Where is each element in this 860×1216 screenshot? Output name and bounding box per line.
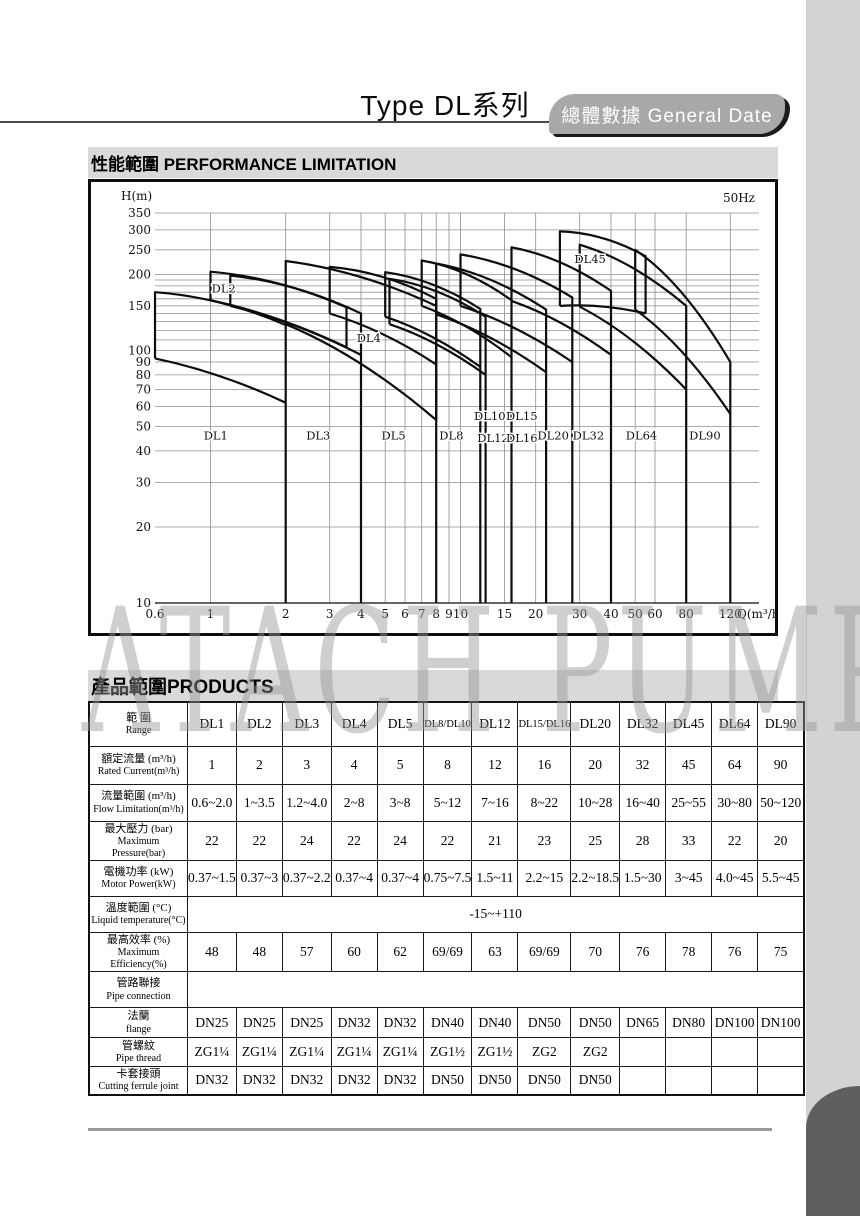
row-label: 卡套接頭Cutting ferrule joint (89, 1067, 188, 1095)
table-cell (712, 1067, 758, 1095)
table-row: 最大壓力 (bar)Maximum Pressure(bar)222224222… (89, 821, 804, 860)
table-cell: 4.0~45 (712, 860, 758, 896)
table-cell: 33 (666, 821, 712, 860)
table-cell: 69/69 (518, 932, 571, 971)
table-cell: 78 (666, 932, 712, 971)
table-cell: ZG1¼ (331, 1038, 377, 1067)
svg-text:4: 4 (357, 607, 365, 621)
table-cell: 10~28 (571, 784, 620, 821)
column-header-DL12: DL12 (472, 702, 518, 746)
column-header-DL64: DL64 (712, 702, 758, 746)
table-cell (666, 1067, 712, 1095)
svg-text:10: 10 (453, 607, 468, 621)
page-corner-decoration (806, 1086, 860, 1216)
table-cell: DN32 (377, 1008, 423, 1038)
table-cell: 16 (518, 746, 571, 784)
svg-text:60: 60 (136, 399, 151, 413)
table-cell: 0.37~4 (331, 860, 377, 896)
svg-text:20: 20 (528, 607, 543, 621)
table-cell: 32 (620, 746, 666, 784)
svg-text:DL4: DL4 (357, 331, 381, 345)
svg-text:1: 1 (207, 607, 215, 621)
svg-text:DL90: DL90 (689, 429, 721, 443)
table-cell: 57 (282, 932, 331, 971)
table-cell: 1.5~30 (620, 860, 666, 896)
table-cell: 48 (188, 932, 237, 971)
table-cell: 22 (423, 821, 472, 860)
row-label: 管路聯接Pipe connection (89, 972, 188, 1008)
svg-text:DL15: DL15 (506, 409, 538, 423)
table-cell: 69/69 (423, 932, 472, 971)
table-cell: 20 (758, 821, 805, 860)
performance-section-heading: 性能範圍 PERFORMANCE LIMITATION (88, 147, 778, 178)
table-cell: 1.5~11 (472, 860, 518, 896)
column-header-DL4: DL4 (331, 702, 377, 746)
column-header-DL15-DL16: DL15/DL16 (518, 702, 571, 746)
table-cell: DN65 (620, 1008, 666, 1038)
svg-text:3: 3 (326, 607, 334, 621)
table-cell: 25~55 (666, 784, 712, 821)
column-header-DL45: DL45 (666, 702, 712, 746)
table-cell: 90 (758, 746, 805, 784)
svg-text:350: 350 (128, 206, 151, 220)
column-header-DL90: DL90 (758, 702, 805, 746)
svg-text:150: 150 (128, 299, 151, 313)
svg-text:80: 80 (679, 607, 694, 621)
table-cell: ZG1½ (472, 1038, 518, 1067)
column-header-DL2: DL2 (236, 702, 282, 746)
table-cell: ZG1¼ (377, 1038, 423, 1067)
svg-text:70: 70 (136, 383, 151, 397)
row-label: 流量範圍 (m³/h)Flow Limitation(m³/h) (89, 784, 188, 821)
table-cell: 48 (236, 932, 282, 971)
svg-text:200: 200 (128, 267, 151, 281)
table-cell (620, 1038, 666, 1067)
svg-text:9: 9 (445, 607, 453, 621)
svg-text:DL32: DL32 (573, 429, 605, 443)
pump-envelope-DL32 (512, 247, 612, 603)
table-header-row: 範 圍RangeDL1DL2DL3DL4DL5DL8/DL10DL12DL15/… (89, 702, 804, 746)
svg-text:DL10: DL10 (474, 409, 506, 423)
table-cell: 0.37~3 (236, 860, 282, 896)
table-cell: DN40 (423, 1008, 472, 1038)
table-row: 卡套接頭Cutting ferrule jointDN32DN32DN32DN3… (89, 1067, 804, 1095)
table-cell: 76 (712, 932, 758, 971)
column-header-DL3: DL3 (282, 702, 331, 746)
table-cell: 16~40 (620, 784, 666, 821)
performance-chart-svg: 1020304050607080901001502002503003500.61… (91, 182, 775, 633)
table-cell: 75 (758, 932, 805, 971)
table-row: 管路聯接Pipe connection (89, 972, 804, 1008)
performance-chart: 1020304050607080901001502002503003500.61… (88, 179, 778, 636)
table-cell: DN32 (282, 1067, 331, 1095)
column-header-DL1: DL1 (188, 702, 237, 746)
table-cell: ZG2 (518, 1038, 571, 1067)
table-cell: DN100 (758, 1008, 805, 1038)
table-cell: 1~3.5 (236, 784, 282, 821)
table-row: 最高效率 (%)Maximum Efficiency(%)48485760626… (89, 932, 804, 971)
svg-text:DL2: DL2 (212, 281, 236, 295)
table-cell (758, 1038, 805, 1067)
table-cell: DN40 (472, 1008, 518, 1038)
row-label: 電機功率 (kW)Motor Power(kW) (89, 860, 188, 896)
svg-text:30: 30 (572, 607, 587, 621)
svg-text:50: 50 (628, 607, 643, 621)
svg-text:7: 7 (418, 607, 426, 621)
svg-text:300: 300 (128, 223, 151, 237)
table-cell: 76 (620, 932, 666, 971)
svg-text:2: 2 (282, 607, 290, 621)
products-table: 範 圍RangeDL1DL2DL3DL4DL5DL8/DL10DL12DL15/… (88, 701, 805, 1096)
table-cell: DN32 (331, 1008, 377, 1038)
table-cell: 5 (377, 746, 423, 784)
svg-text:50: 50 (136, 419, 151, 433)
table-cell: 5~12 (423, 784, 472, 821)
svg-text:60: 60 (647, 607, 662, 621)
table-cell: DN32 (236, 1067, 282, 1095)
table-cell: 62 (377, 932, 423, 971)
table-cell: 1.2~4.0 (282, 784, 331, 821)
table-cell: ZG1½ (423, 1038, 472, 1067)
products-section-heading: 產品範圍PRODUCTS (88, 670, 778, 701)
table-cell: 0.75~7.5 (423, 860, 472, 896)
table-cell (758, 1067, 805, 1095)
table-cell: DN50 (518, 1067, 571, 1095)
column-header-DL32: DL32 (620, 702, 666, 746)
svg-text:80: 80 (136, 368, 151, 382)
table-cell: 2 (236, 746, 282, 784)
table-cell: 5.5~45 (758, 860, 805, 896)
table-cell: 30~80 (712, 784, 758, 821)
svg-text:50Hz: 50Hz (723, 191, 755, 205)
table-cell: 3~8 (377, 784, 423, 821)
table-cell: DN32 (331, 1067, 377, 1095)
table-cell: 25 (571, 821, 620, 860)
table-cell: DN25 (282, 1008, 331, 1038)
table-cell: DN100 (712, 1008, 758, 1038)
table-cell: 0.37~4 (377, 860, 423, 896)
svg-text:H(m): H(m) (121, 189, 152, 203)
table-cell: 22 (188, 821, 237, 860)
svg-text:DL45: DL45 (574, 252, 606, 266)
page-edge-strip (806, 0, 860, 1216)
table-cell: 22 (236, 821, 282, 860)
row-label: 法蘭flange (89, 1008, 188, 1038)
svg-text:40: 40 (136, 444, 151, 458)
table-cell: 22 (712, 821, 758, 860)
svg-text:20: 20 (136, 520, 151, 534)
svg-text:DL8: DL8 (439, 429, 463, 443)
table-cell: ZG1¼ (282, 1038, 331, 1067)
table-row: 電機功率 (kW)Motor Power(kW)0.37~1.50.37~30.… (89, 860, 804, 896)
svg-text:DL16: DL16 (506, 431, 538, 445)
row-label: 額定流量 (m³/h)Rated Current(m³/h) (89, 746, 188, 784)
table-cell: DN32 (377, 1067, 423, 1095)
pump-envelope-DL1 (155, 292, 286, 603)
svg-text:DL12: DL12 (477, 431, 509, 445)
svg-text:8: 8 (432, 607, 440, 621)
column-header-DL20: DL20 (571, 702, 620, 746)
table-cell: 1 (188, 746, 237, 784)
row-label: 最大壓力 (bar)Maximum Pressure(bar) (89, 821, 188, 860)
table-cell: 2.2~15 (518, 860, 571, 896)
table-cell: ZG1¼ (188, 1038, 237, 1067)
table-cell: 70 (571, 932, 620, 971)
table-cell: 23 (518, 821, 571, 860)
table-cell: 8 (423, 746, 472, 784)
table-span-cell: -15~+110 (188, 896, 805, 932)
table-cell: DN32 (188, 1067, 237, 1095)
table-cell: 50~120 (758, 784, 805, 821)
table-cell: 0.37~1.5 (188, 860, 237, 896)
svg-text:0.6: 0.6 (145, 607, 164, 621)
table-cell: 64 (712, 746, 758, 784)
table-cell: 24 (377, 821, 423, 860)
column-header-DL8-DL10: DL8/DL10 (423, 702, 472, 746)
table-cell: DN50 (571, 1067, 620, 1095)
table-cell: DN80 (666, 1008, 712, 1038)
table-row: 額定流量 (m³/h)Rated Current(m³/h)1234581216… (89, 746, 804, 784)
table-row: 流量範圍 (m³/h)Flow Limitation(m³/h)0.6~2.01… (89, 784, 804, 821)
row-label: 最高效率 (%)Maximum Efficiency(%) (89, 932, 188, 971)
table-cell: 22 (331, 821, 377, 860)
table-cell: 2.2~18.5 (571, 860, 620, 896)
table-cell: DN25 (188, 1008, 237, 1038)
svg-text:15: 15 (497, 607, 512, 621)
svg-text:DL64: DL64 (626, 429, 658, 443)
svg-text:250: 250 (128, 243, 151, 257)
table-cell: DN50 (472, 1067, 518, 1095)
tab-general-data: 總體數據 General Date (549, 94, 785, 134)
table-cell: 3 (282, 746, 331, 784)
svg-text:6: 6 (401, 607, 409, 621)
table-cell: DN25 (236, 1008, 282, 1038)
table-cell: 24 (282, 821, 331, 860)
svg-text:Q(m³/h): Q(m³/h) (737, 607, 775, 621)
table-cell: 63 (472, 932, 518, 971)
table-cell: ZG2 (571, 1038, 620, 1067)
table-row: 溫度範圍 (°C)Liquid temperature(°C)-15~+110 (89, 896, 804, 932)
table-cell: ZG1¼ (236, 1038, 282, 1067)
table-cell: 2~8 (331, 784, 377, 821)
table-cell: DN50 (518, 1008, 571, 1038)
table-cell (712, 1038, 758, 1067)
svg-text:DL5: DL5 (382, 429, 406, 443)
table-cell: 4 (331, 746, 377, 784)
table-cell (666, 1038, 712, 1067)
svg-text:DL3: DL3 (306, 429, 330, 443)
table-cell: DN50 (423, 1067, 472, 1095)
svg-text:DL1: DL1 (204, 429, 228, 443)
table-cell: 3~45 (666, 860, 712, 896)
svg-text:30: 30 (136, 476, 151, 490)
svg-text:40: 40 (603, 607, 618, 621)
row-label: 溫度範圍 (°C)Liquid temperature(°C) (89, 896, 188, 932)
column-header-DL5: DL5 (377, 702, 423, 746)
footer-rule (88, 1128, 772, 1131)
svg-text:DL20: DL20 (537, 429, 569, 443)
table-cell: 0.37~2.2 (282, 860, 331, 896)
table-row: 法蘭flangeDN25DN25DN25DN32DN32DN40DN40DN50… (89, 1008, 804, 1038)
svg-text:100: 100 (128, 343, 151, 357)
table-cell: 7~16 (472, 784, 518, 821)
table-cell: 8~22 (518, 784, 571, 821)
table-cell: 12 (472, 746, 518, 784)
table-cell (620, 1067, 666, 1095)
table-cell: 28 (620, 821, 666, 860)
table-cell: 20 (571, 746, 620, 784)
table-cell: 60 (331, 932, 377, 971)
range-header-cell: 範 圍Range (89, 702, 188, 746)
table-row: 管螺紋Pipe threadZG1¼ZG1¼ZG1¼ZG1¼ZG1¼ZG1½ZG… (89, 1038, 804, 1067)
table-cell: 21 (472, 821, 518, 860)
row-label: 管螺紋Pipe thread (89, 1038, 188, 1067)
table-cell: DN50 (571, 1008, 620, 1038)
table-cell: 0.6~2.0 (188, 784, 237, 821)
table-cell: 45 (666, 746, 712, 784)
svg-text:5: 5 (381, 607, 389, 621)
table-span-cell (188, 972, 805, 1008)
